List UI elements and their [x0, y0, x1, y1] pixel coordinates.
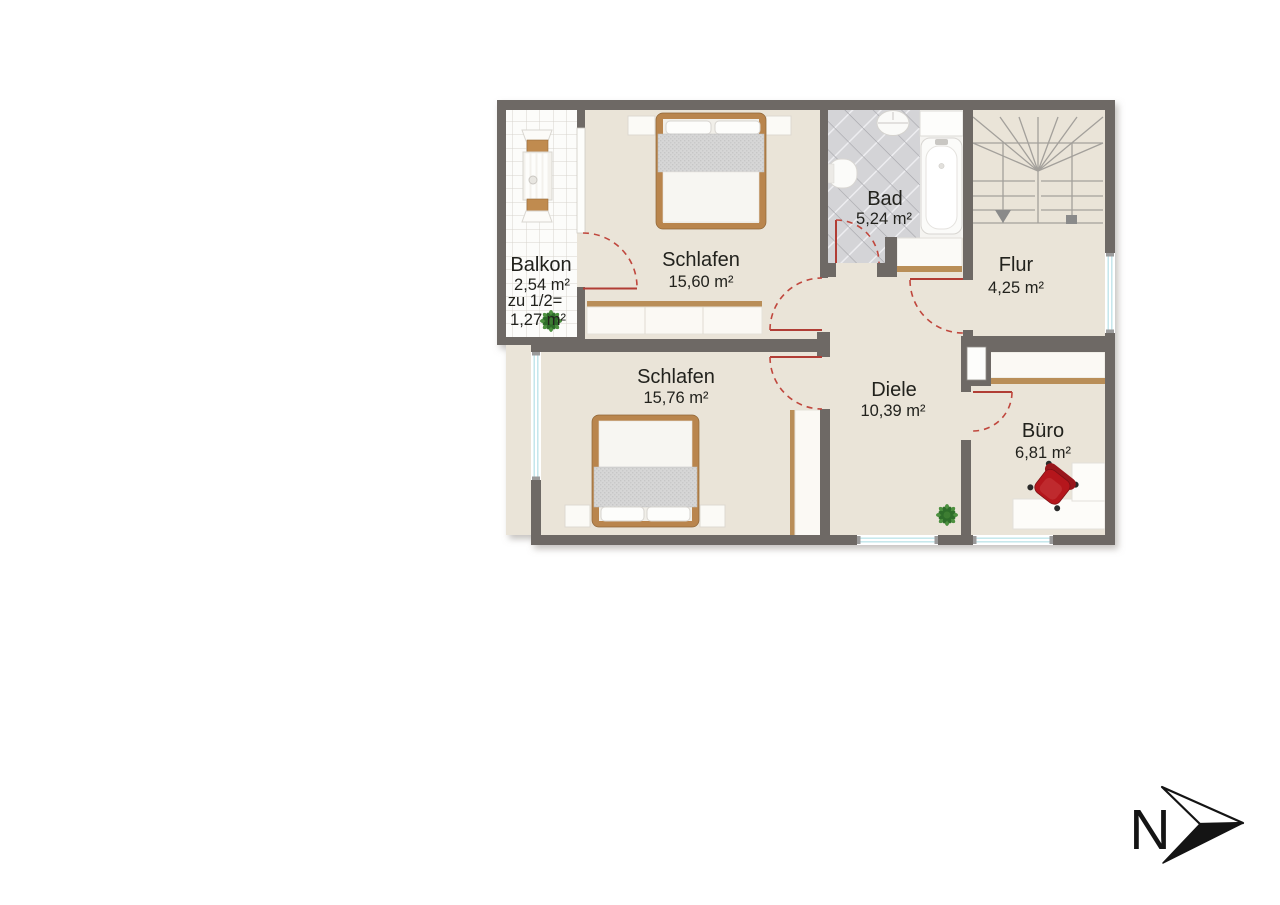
- floor-plan: Balkon 2,54 m² zu 1/2= 1,27 m² Schlafen …: [0, 0, 1280, 905]
- label-diele-area: 10,39 m²: [860, 402, 926, 420]
- north-arrow-lower-blade: [1163, 823, 1243, 863]
- label-buero-area: 6,81 m²: [1015, 444, 1071, 462]
- window-schlafen-bottom-left: [531, 352, 541, 480]
- nightstand: [766, 116, 791, 135]
- label-diele: Diele: [871, 379, 917, 401]
- window-buero: [973, 535, 1053, 545]
- sink: [877, 111, 909, 136]
- north-arrow: N: [1129, 787, 1243, 863]
- label-schlafen-bottom: Schlafen: [637, 366, 715, 388]
- bath-shelf: [920, 111, 963, 136]
- label-buero: Büro: [1022, 420, 1064, 442]
- label-balkon-half: zu 1/2=: [508, 292, 563, 310]
- north-arrow-upper-blade: [1162, 787, 1243, 824]
- label-bad-area: 5,24 m²: [856, 210, 912, 228]
- floor-plan-page: Balkon 2,54 m² zu 1/2= 1,27 m² Schlafen …: [0, 0, 1280, 905]
- window-balcony-divider: [577, 128, 585, 233]
- nightstand: [700, 505, 725, 527]
- bathtub: [920, 111, 963, 234]
- wardrobe-schlafen-top: [587, 301, 762, 334]
- window-diele: [857, 535, 938, 545]
- plant: [936, 504, 958, 526]
- label-balkon-half-area: 1,27 m²: [510, 311, 566, 329]
- stair-newel-post: [1066, 215, 1077, 224]
- shaft: [967, 347, 986, 380]
- label-flur: Flur: [999, 254, 1034, 276]
- window-flur: [1105, 253, 1115, 333]
- label-bad: Bad: [867, 188, 903, 210]
- wardrobe-bath-nook: [897, 238, 962, 272]
- toilet: [828, 159, 857, 188]
- label-schlafen-top-area: 15,60 m²: [668, 273, 734, 291]
- label-balkon: Balkon: [510, 254, 571, 276]
- nightstand: [628, 116, 655, 135]
- label-flur-area: 4,25 m²: [988, 279, 1044, 297]
- label-schlafen-bottom-area: 15,76 m²: [643, 389, 709, 407]
- wardrobe-buero: [987, 352, 1105, 384]
- wardrobe-schlafen-bottom: [790, 410, 822, 540]
- nightstand: [565, 505, 590, 527]
- label-schlafen-top: Schlafen: [662, 249, 740, 271]
- north-label: N: [1129, 798, 1170, 862]
